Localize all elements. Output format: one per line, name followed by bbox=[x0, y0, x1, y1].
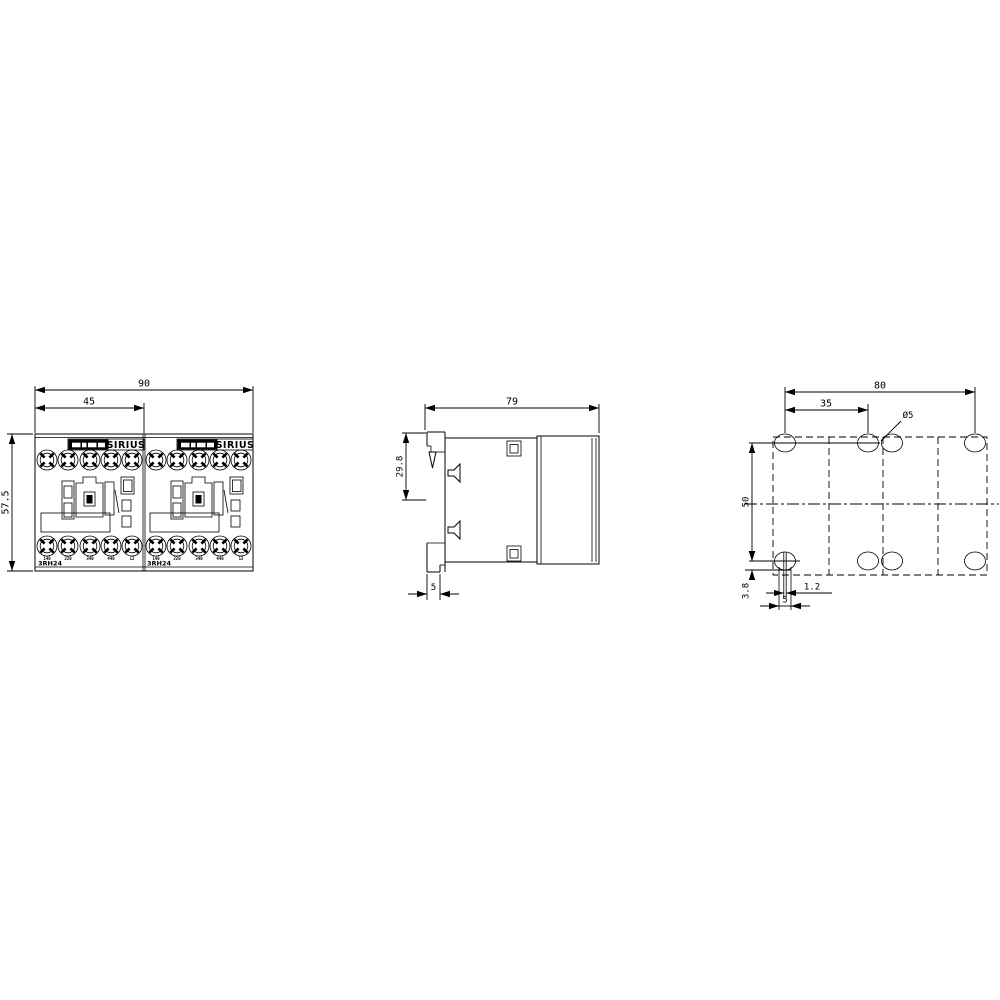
mounting-holes bbox=[775, 434, 986, 570]
brand-label: SIRIUS bbox=[107, 440, 146, 451]
svg-text:440: 440 bbox=[107, 556, 115, 561]
device-outline-dashed bbox=[773, 437, 987, 575]
svg-text:45: 45 bbox=[83, 397, 95, 408]
hole-diameter-callout: Ø5 bbox=[881, 410, 913, 441]
dim-hole-pitch: 35 bbox=[785, 399, 868, 434]
drilling-plan: 80 35 Ø5 50 3.8 bbox=[742, 381, 1000, 611]
svg-text:35: 35 bbox=[820, 399, 832, 410]
mechanism-module-a bbox=[41, 477, 134, 532]
din-rail-bracket bbox=[427, 432, 445, 572]
dim-depth: 79 bbox=[425, 397, 599, 434]
svg-text:440: 440 bbox=[216, 556, 224, 561]
svg-text:12: 12 bbox=[130, 556, 135, 561]
dim-hole-span-width: 80 bbox=[785, 381, 975, 434]
svg-text:340: 340 bbox=[86, 556, 94, 561]
mechanism-module-b bbox=[150, 477, 243, 532]
module-b-label: SIRIUS bbox=[177, 439, 254, 451]
dim-plate-thickness: 5 bbox=[408, 574, 459, 600]
svg-text:5: 5 bbox=[431, 583, 436, 593]
dim-hole-width: 5 bbox=[760, 596, 810, 607]
svg-text:340: 340 bbox=[195, 556, 203, 561]
dim-slot-width: 1.2 bbox=[766, 583, 832, 594]
side-body-outline bbox=[445, 438, 537, 562]
svg-text:57.5: 57.5 bbox=[1, 490, 12, 514]
terminal-clamps bbox=[507, 441, 521, 561]
svg-text:220: 220 bbox=[173, 556, 181, 561]
release-clip-top bbox=[448, 464, 460, 482]
coil-block bbox=[537, 436, 599, 564]
svg-text:90: 90 bbox=[138, 379, 150, 390]
brand-label: SIRIUS bbox=[216, 440, 255, 451]
dim-rail-offset: 29.8 bbox=[396, 433, 427, 500]
release-clip-bottom bbox=[448, 521, 460, 539]
module-a-label: SIRIUS bbox=[68, 439, 145, 451]
svg-text:3.8: 3.8 bbox=[742, 583, 752, 599]
dim-height: 57.5 bbox=[1, 434, 34, 571]
svg-text:79: 79 bbox=[506, 397, 518, 408]
svg-text:1.2: 1.2 bbox=[804, 583, 820, 593]
model-label-b: 3RH24 bbox=[147, 560, 171, 568]
model-label-a: 3RH24 bbox=[38, 560, 62, 568]
svg-text:5: 5 bbox=[782, 596, 787, 606]
drawing-canvas: SIRIUS SIRIUS 140 220 340 440 12 bbox=[0, 0, 1000, 1000]
svg-text:29.8: 29.8 bbox=[396, 456, 406, 478]
svg-text:12: 12 bbox=[239, 556, 244, 561]
dimensional-drawing: SIRIUS SIRIUS 140 220 340 440 12 bbox=[0, 0, 1000, 1000]
svg-text:Ø5: Ø5 bbox=[903, 410, 914, 421]
dim-hole-span-height: 50 bbox=[742, 443, 881, 561]
svg-text:80: 80 bbox=[874, 381, 886, 392]
dim-module-width: 45 bbox=[35, 397, 144, 434]
svg-text:50: 50 bbox=[742, 497, 752, 508]
front-view: SIRIUS SIRIUS 140 220 340 440 12 bbox=[1, 379, 255, 572]
side-view: 79 29.8 5 bbox=[396, 397, 600, 601]
front-body-outline bbox=[35, 434, 253, 571]
svg-text:220: 220 bbox=[64, 556, 72, 561]
